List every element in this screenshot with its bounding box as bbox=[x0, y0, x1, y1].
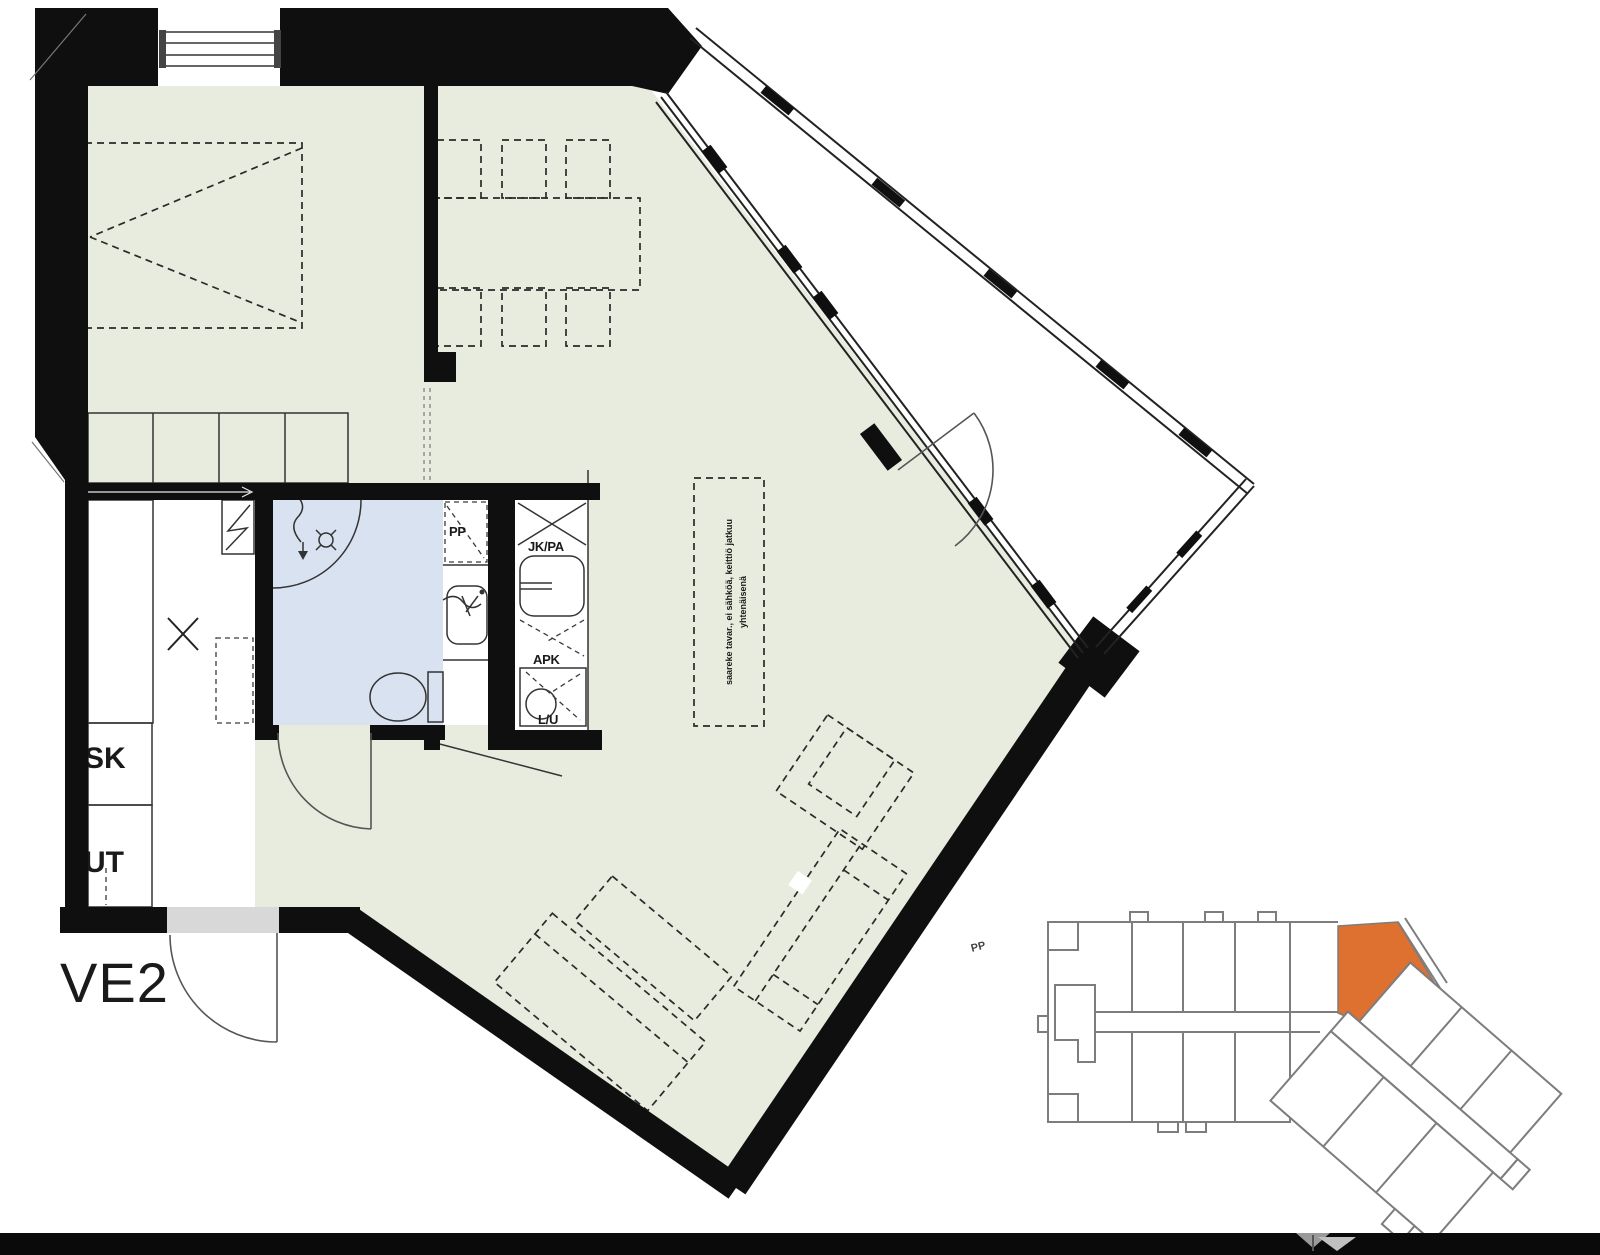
bathroom-left-wall bbox=[255, 490, 273, 727]
ut-closet-label: UT bbox=[84, 846, 124, 879]
top-right-corner bbox=[632, 8, 702, 94]
left-wall bbox=[35, 8, 88, 912]
window-top bbox=[158, 8, 281, 86]
partition-foot bbox=[424, 352, 456, 382]
island-note-line1: saareke tavar., ei sähköä, keittiö jatku… bbox=[724, 519, 734, 685]
bottom-bar bbox=[0, 1233, 1600, 1255]
top-wall bbox=[35, 8, 660, 86]
bathroom-kitchen-wall bbox=[488, 488, 515, 732]
floor-plan-page: saareke tavar., ei sähköä, keittiö jatku… bbox=[0, 0, 1600, 1255]
stove-label: L/U bbox=[538, 712, 558, 727]
kitchen-bottom-wall bbox=[488, 730, 602, 750]
site-main-block bbox=[1048, 922, 1290, 1122]
apartment-floor bbox=[88, 86, 1082, 1180]
site-key-plan: PP bbox=[970, 912, 1581, 1255]
bathroom-floor bbox=[273, 500, 443, 725]
bedroom-partition-wall bbox=[424, 84, 438, 356]
washer-label: PP bbox=[449, 524, 466, 539]
entry-threshold bbox=[167, 907, 279, 933]
island-note-line2: yhtenäisenä bbox=[738, 575, 748, 628]
fridge-label: JK/PA bbox=[528, 539, 565, 554]
dishwasher-label: APK bbox=[533, 652, 560, 667]
entry-door bbox=[170, 933, 277, 1042]
bathroom-bottom-wall-right bbox=[370, 725, 445, 740]
site-wing bbox=[1257, 953, 1581, 1255]
floor-plan-drawing: saareke tavar., ei sähköä, keittiö jatku… bbox=[0, 0, 1600, 1255]
sk-closet-label: SK bbox=[84, 742, 126, 775]
site-bike-parking-label: PP bbox=[970, 940, 987, 955]
plan-variant-label: VE2 bbox=[60, 951, 169, 1014]
bathroom-bottom-wall-left bbox=[255, 725, 279, 740]
